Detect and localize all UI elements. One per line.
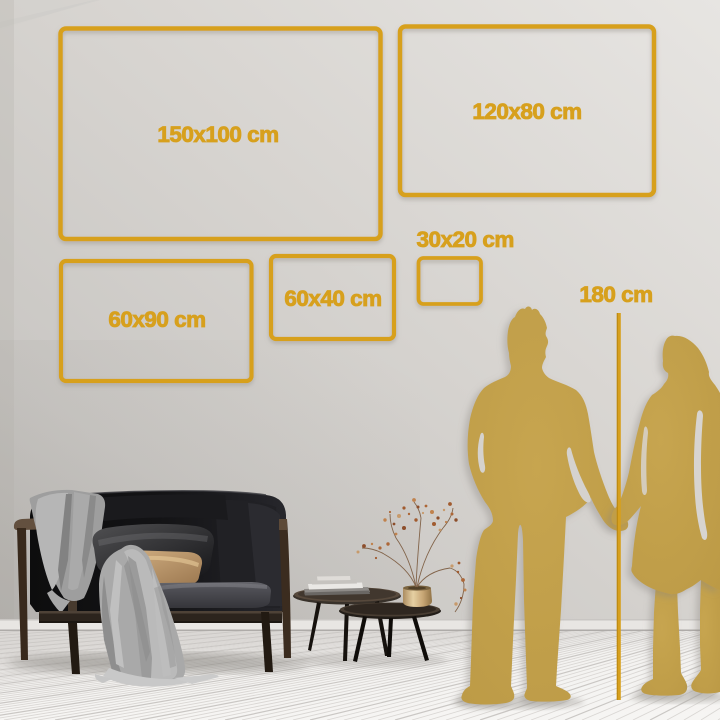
svg-text:30x20 cm: 30x20 cm — [417, 227, 514, 252]
svg-text:180 cm: 180 cm — [579, 282, 652, 307]
svg-text:120x80 cm: 120x80 cm — [472, 99, 581, 124]
svg-text:60x40 cm: 60x40 cm — [284, 286, 381, 311]
svg-text:60x90 cm: 60x90 cm — [108, 307, 205, 332]
svg-text:150x100 cm: 150x100 cm — [157, 122, 278, 147]
